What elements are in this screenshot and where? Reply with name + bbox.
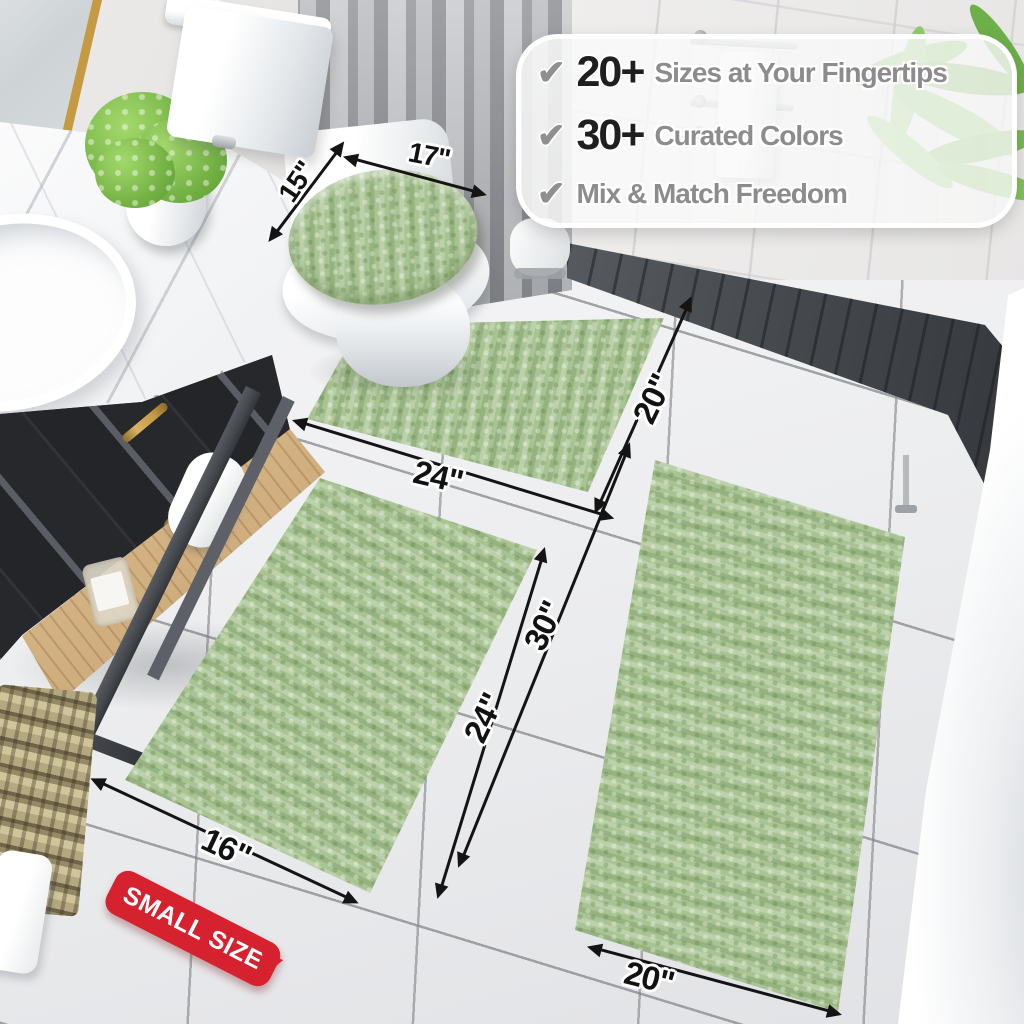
- feature-label: Sizes at Your Fingertips: [654, 59, 946, 87]
- counter-plant: [95, 138, 175, 208]
- drain-pipe: [903, 455, 909, 509]
- bathroom-product-photo: 15" 17" 24" 20" 16" 24" 30" 20" 20+ Size…: [0, 0, 1024, 1024]
- feature-row-sizes: 20+ Sizes at Your Fingertips: [537, 51, 996, 94]
- feature-banner: 20+ Sizes at Your Fingertips 30+ Curated…: [516, 34, 1017, 228]
- toilet-base-plinth: [514, 268, 566, 279]
- drain-base: [895, 505, 917, 513]
- feature-value: 20+: [577, 51, 644, 94]
- toilet-tank: [166, 5, 335, 159]
- checkmark-icon: [537, 119, 566, 153]
- feature-label: Mix & Match Freedom: [577, 180, 847, 208]
- checkmark-icon: [537, 56, 566, 90]
- feature-row-mix-match: Mix & Match Freedom: [537, 177, 996, 211]
- feature-label: Curated Colors: [654, 122, 842, 150]
- checkmark-icon: [537, 177, 566, 211]
- feature-value: 30+: [577, 114, 644, 157]
- feature-row-colors: 30+ Curated Colors: [537, 114, 996, 157]
- bottle-label: [90, 571, 129, 612]
